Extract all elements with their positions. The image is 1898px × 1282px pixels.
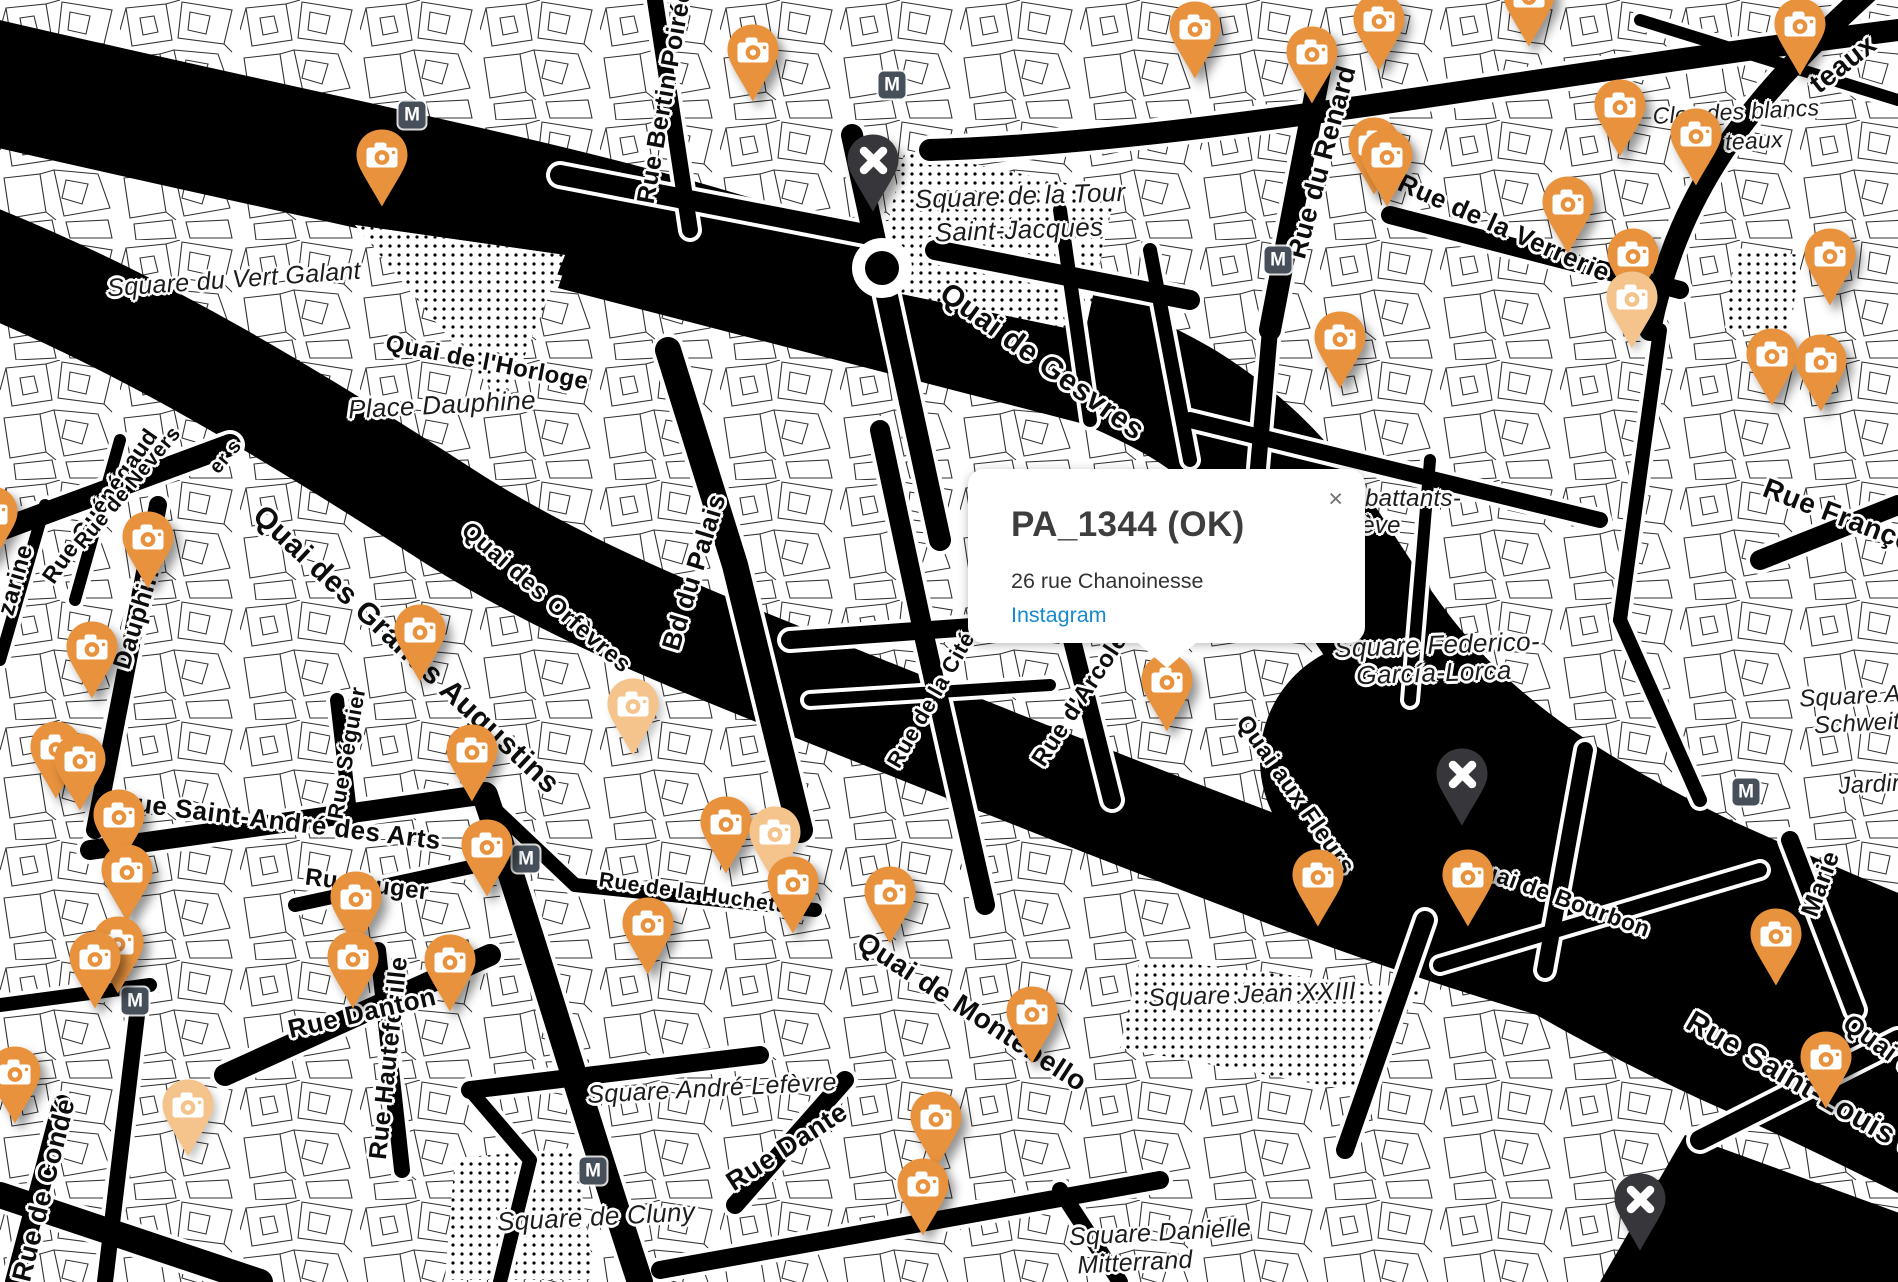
camera-icon (1284, 25, 1340, 105)
camera-marker-pin[interactable] (1167, 0, 1223, 80)
camera-marker-pin[interactable] (1592, 78, 1648, 158)
area-label: Schweit (1813, 708, 1898, 740)
camera-marker-pin[interactable] (1440, 848, 1496, 928)
camera-marker-pin[interactable] (1802, 227, 1858, 307)
camera-icon (1359, 128, 1415, 208)
camera-icon (1604, 270, 1660, 350)
metro-icon: M (1733, 779, 1760, 806)
camera-icon (1351, 0, 1407, 72)
camera-icon (422, 933, 478, 1013)
camera-icon (1592, 78, 1648, 158)
metro-icon: M (1265, 247, 1292, 274)
area-label: Saint-Jacques (934, 212, 1104, 249)
excluded-marker-pin[interactable] (1612, 1172, 1668, 1252)
camera-marker-pin[interactable] (0, 1045, 43, 1125)
camera-icon (1540, 175, 1596, 255)
popup-tail (1137, 642, 1197, 668)
camera-marker-pin[interactable] (1004, 985, 1060, 1065)
camera-icon (1802, 227, 1858, 307)
camera-icon (1312, 310, 1368, 390)
camera-icon (1748, 907, 1804, 987)
camera-marker-pin[interactable] (765, 855, 821, 935)
camera-marker-pin[interactable] (1604, 270, 1660, 350)
camera-marker-pin[interactable] (1284, 25, 1340, 105)
camera-marker-pin[interactable] (1290, 848, 1346, 928)
camera-icon (1772, 0, 1828, 77)
camera-icon (325, 930, 381, 1010)
excluded-marker-pin[interactable] (1434, 747, 1490, 827)
metro-icon: M (513, 846, 540, 873)
camera-icon (862, 865, 918, 945)
camera-marker-pin[interactable] (392, 603, 448, 683)
camera-marker-pin[interactable] (67, 930, 123, 1010)
camera-icon (392, 603, 448, 683)
camera-icon (354, 128, 410, 208)
excluded-marker-pin[interactable] (845, 133, 901, 213)
x-icon (1612, 1172, 1668, 1252)
camera-marker-pin[interactable] (160, 1078, 216, 1158)
area-label: Mitterrand (1077, 1245, 1194, 1280)
camera-marker-pin[interactable] (1744, 327, 1800, 407)
camera-icon (67, 930, 123, 1010)
camera-icon (444, 723, 500, 803)
camera-marker-pin[interactable] (605, 677, 661, 757)
camera-marker-pin[interactable] (120, 510, 176, 590)
camera-marker-pin[interactable] (325, 930, 381, 1010)
popup-title: PA_1344 (OK) (1011, 505, 1325, 545)
camera-icon (1167, 0, 1223, 80)
area-label: battants- (1365, 485, 1461, 513)
camera-icon (1798, 1030, 1854, 1110)
camera-marker-pin[interactable] (1312, 310, 1368, 390)
area-label: Jardin (1838, 769, 1898, 800)
camera-icon (120, 510, 176, 590)
camera-icon (1793, 333, 1849, 413)
camera-marker-pin[interactable] (459, 818, 515, 898)
camera-marker-pin[interactable] (895, 1157, 951, 1237)
camera-icon (765, 855, 821, 935)
popup-instagram-link[interactable]: Instagram (1011, 603, 1107, 628)
camera-icon (895, 1157, 951, 1237)
area-label: ève (1361, 512, 1401, 540)
camera-marker-pin[interactable] (620, 896, 676, 976)
camera-icon (459, 818, 515, 898)
popup-close-button[interactable]: × (1324, 483, 1347, 516)
x-icon (845, 133, 901, 213)
camera-marker-pin[interactable] (1351, 0, 1407, 72)
camera-marker-pin[interactable] (1748, 907, 1804, 987)
popup-address: 26 rue Chanoinesse (1011, 569, 1325, 594)
camera-icon (99, 843, 155, 923)
camera-marker-pin[interactable] (422, 933, 478, 1013)
camera-icon (160, 1078, 216, 1158)
camera-marker-pin[interactable] (0, 485, 20, 565)
camera-marker-pin[interactable] (1793, 333, 1849, 413)
camera-icon (1290, 848, 1346, 928)
camera-marker-pin[interactable] (444, 723, 500, 803)
camera-icon (0, 1045, 43, 1125)
camera-icon (620, 896, 676, 976)
x-icon (1434, 747, 1490, 827)
camera-icon (64, 620, 120, 700)
camera-icon (1668, 107, 1724, 187)
camera-icon (1004, 985, 1060, 1065)
camera-icon (1744, 327, 1800, 407)
camera-marker-pin[interactable] (64, 620, 120, 700)
camera-marker-pin[interactable] (1501, 0, 1557, 48)
camera-marker-pin[interactable] (1540, 175, 1596, 255)
camera-marker-pin[interactable] (354, 128, 410, 208)
marker-popup: × PA_1344 (OK) 26 rue Chanoinesse Instag… (968, 469, 1365, 643)
camera-icon (1440, 848, 1496, 928)
area-label: García-Lorca (1356, 655, 1512, 691)
camera-marker-pin[interactable] (1798, 1030, 1854, 1110)
camera-marker-pin[interactable] (1772, 0, 1828, 77)
area-label: teaux (1724, 126, 1783, 156)
camera-marker-pin[interactable] (862, 865, 918, 945)
camera-marker-pin[interactable] (99, 843, 155, 923)
map-view: Quai de GesvresQuai de l'HorlogeQuai des… (0, 0, 1898, 1282)
camera-icon (725, 23, 781, 103)
camera-icon (1501, 0, 1557, 48)
camera-marker-pin[interactable] (698, 795, 754, 875)
metro-icon: M (580, 1158, 607, 1185)
camera-icon (698, 795, 754, 875)
camera-marker-pin[interactable] (1359, 128, 1415, 208)
camera-icon (605, 677, 661, 757)
camera-icon (0, 485, 20, 565)
camera-marker-pin[interactable] (725, 23, 781, 103)
metro-icon: M (879, 72, 906, 99)
camera-marker-pin[interactable] (1668, 107, 1724, 187)
metro-icon: M (399, 102, 426, 129)
